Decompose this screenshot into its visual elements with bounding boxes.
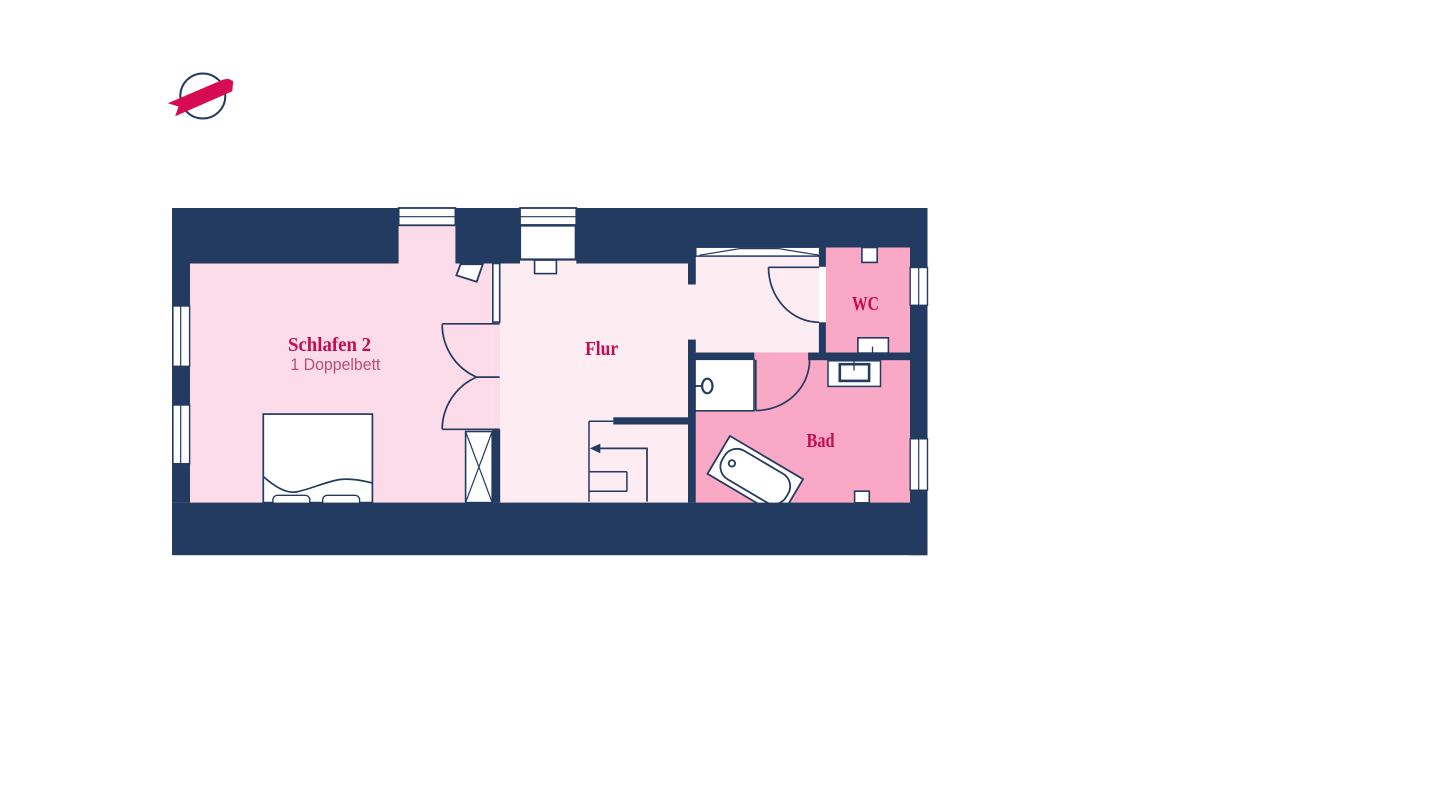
svg-text:Schlafen 2: Schlafen 2 xyxy=(288,334,371,356)
svg-text:WC: WC xyxy=(852,293,879,315)
svg-text:1 Doppelbett: 1 Doppelbett xyxy=(290,355,380,374)
svg-text:Flur: Flur xyxy=(585,338,618,360)
svg-text:Bad: Bad xyxy=(807,430,835,452)
